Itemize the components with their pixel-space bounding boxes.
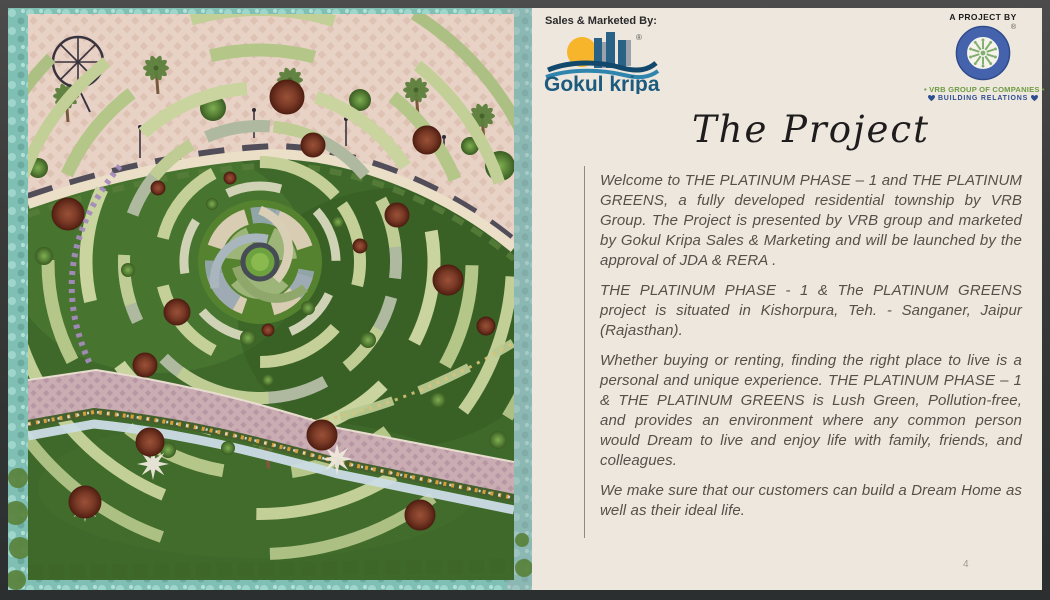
gokul-registered-mark: ® <box>636 33 642 42</box>
gokul-kripa-wordmark: Gokul kripa <box>544 73 660 94</box>
project-description: Welcome to THE PLATINUM PHASE – 1 and TH… <box>600 171 1022 531</box>
presentation-slide: Sales & Marketed By: ® Gokul kripa <box>0 0 1050 600</box>
vrb-tagline-text: BUILDING RELATIONS <box>938 95 1028 102</box>
page-number: 4 <box>963 559 969 570</box>
vrb-registered-mark: ® <box>1011 24 1016 31</box>
sales-marketed-by-label: Sales & Marketed By: <box>545 15 657 27</box>
garden-aerial-render <box>8 8 532 590</box>
vrb-logo-icon <box>954 24 1012 82</box>
garden-photo <box>8 8 532 590</box>
text-rule-divider <box>584 166 585 538</box>
bottom-hedge <box>28 566 514 572</box>
vrb-group-label: • VRB GROUP OF COMPANIES • <box>924 85 1042 94</box>
page-title: The Project <box>600 108 1022 151</box>
project-paragraph: We make sure that our customers can buil… <box>600 481 1022 521</box>
project-by-label: A PROJECT BY <box>924 12 1042 22</box>
hands-heart-icon <box>928 95 935 102</box>
project-by-block: A PROJECT BY ® <box>924 12 1042 102</box>
vrb-tagline: BUILDING RELATIONS <box>924 95 1042 102</box>
content-panel: Sales & Marketed By: ® Gokul kripa <box>532 8 1042 590</box>
project-paragraph: Whether buying or renting, finding the r… <box>600 351 1022 471</box>
project-paragraph: THE PLATINUM PHASE - 1 & The PLATINUM GR… <box>600 281 1022 341</box>
hands-heart-icon <box>1031 95 1038 102</box>
project-paragraph: Welcome to THE PLATINUM PHASE – 1 and TH… <box>600 171 1022 271</box>
gokul-kripa-logo-icon: ® Gokul kripa <box>540 28 672 94</box>
gokul-kripa-logo: ® Gokul kripa <box>540 28 672 99</box>
